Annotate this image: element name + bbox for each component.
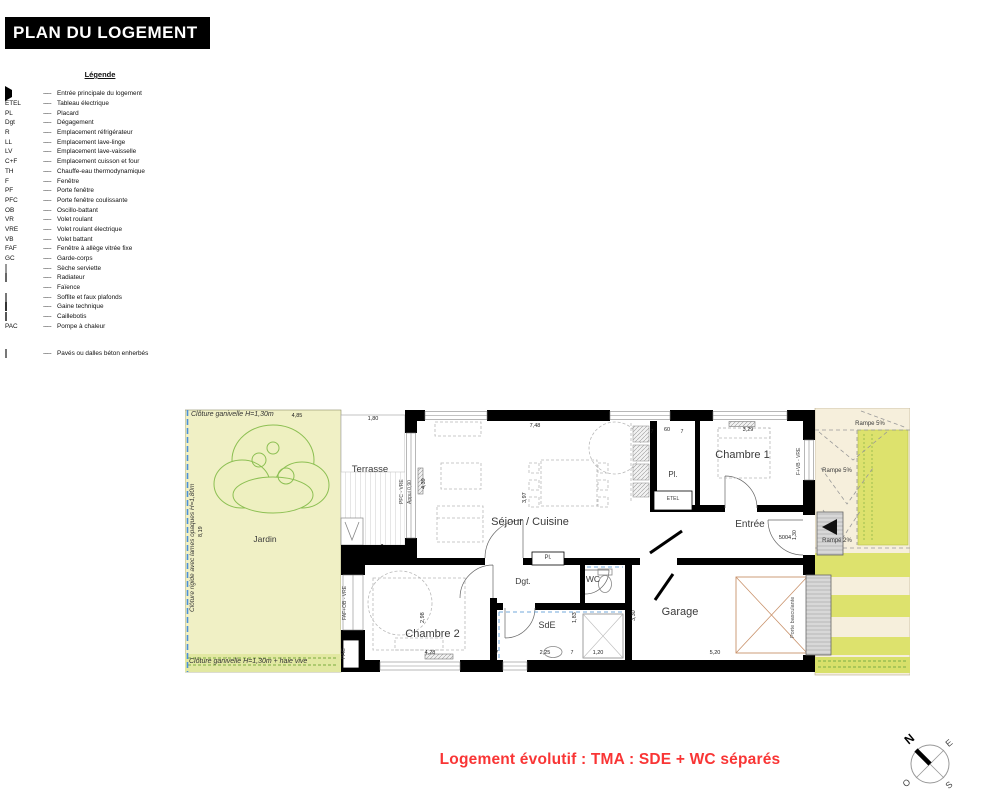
legend-item-ob: OB ----- Oscillo-battant	[5, 205, 240, 215]
seche-serviette-icon	[5, 264, 7, 273]
footer-note: Logement évolutif : TMA : SDE + WC sépar…	[420, 751, 800, 769]
legend-desc: Emplacement lave-vaisselle	[57, 148, 136, 155]
legend-dash: -----	[43, 313, 57, 320]
paves-swatch-icon	[5, 349, 7, 358]
legend-desc: Dégagement	[57, 119, 94, 126]
legend-item-pfc: PFC ----- Porte fenêtre coulissante	[5, 196, 240, 206]
legend-item-etel: ETEL ----- Tableau électrique	[5, 99, 240, 109]
legend-desc: Porte fenêtre	[57, 187, 94, 194]
legend-key: F	[5, 178, 43, 185]
legend-key: OB	[5, 207, 43, 214]
room-label-terrasse: Terrasse	[330, 465, 410, 475]
ramp-label-bottom: Rampé 2%	[807, 538, 867, 544]
legend-key: PFC	[5, 197, 43, 204]
legend-item-pl: PL ----- Placard	[5, 108, 240, 118]
legend-dash: -----	[43, 197, 57, 204]
legend-dash: -----	[43, 207, 57, 214]
legend-item-chauffe-eau: TH ----- Chauffe-eau thermodynamique	[5, 167, 240, 177]
legend-dash: -----	[43, 236, 57, 243]
legend-key: GC	[5, 255, 43, 262]
legend-key	[5, 313, 43, 320]
room-label-sde: SdE	[527, 621, 567, 630]
legend-desc: Fenêtre	[57, 178, 79, 185]
legend-dash: -----	[43, 168, 57, 175]
legend-item-seche-serviette: ----- Sèche serviette	[5, 263, 240, 273]
legend-desc: Oscillo-battant	[57, 207, 98, 214]
legend-dash: -----	[43, 284, 57, 291]
legend-item-vb: VB ----- Volet battant	[5, 234, 240, 244]
legend-key	[5, 274, 43, 281]
legend-key	[5, 303, 43, 310]
garage-door-label: Porte basculante	[791, 586, 797, 648]
legend-dash: -----	[43, 110, 57, 117]
window-label-chambre1: F+VB - VRE	[797, 440, 802, 482]
legend-dash: -----	[43, 303, 57, 310]
legend-dash: -----	[43, 129, 57, 136]
legend-header: Légende	[5, 70, 195, 79]
legend-item-fenetre: F ----- Fenêtre	[5, 176, 240, 186]
ramp-label-top: Rampe 5%	[840, 421, 900, 427]
legend-dash: -----	[43, 323, 57, 330]
dimension-label: 3,29	[730, 428, 766, 434]
legend-desc: Volet roulant électrique	[57, 226, 122, 233]
legend-dash: -----	[43, 245, 57, 252]
legend-item-vr: VR ----- Volet roulant	[5, 215, 240, 225]
window-sill-label: Appui 0,90	[408, 460, 413, 524]
dimension-label: 60	[658, 428, 676, 434]
legend-key	[5, 350, 43, 357]
dimension-label: 3,97	[523, 478, 529, 518]
legend-key: PF	[5, 187, 43, 194]
dimension-label: 7	[493, 651, 501, 656]
legend-key: R	[5, 129, 43, 136]
room-label-chambre1: Chambre 1	[685, 450, 800, 461]
caillebotis-icon	[5, 312, 7, 321]
legend-dash: -----	[43, 216, 57, 223]
dimension-label: 5,20	[695, 651, 735, 657]
legend-item-dgt: Dgt ----- Dégagement	[5, 118, 240, 128]
room-label-etel: ETEL	[654, 497, 692, 502]
legend-item-cuisson: C+F ----- Emplacement cuisson et four	[5, 157, 240, 167]
legend-item-pac: PAC ----- Pompe à chaleur	[5, 322, 240, 332]
legend-desc: Entrée principale du logement	[57, 90, 142, 97]
floor-plan: Terrasse Jardin Séjour / Cuisine Chambre…	[185, 408, 910, 676]
legend-key: ETEL	[5, 100, 43, 107]
dimension-label: 7	[648, 430, 656, 435]
legend-desc: Fenêtre à allège vitrée fixe	[57, 245, 132, 252]
legend-item-radiateur: ----- Radiateur	[5, 273, 240, 283]
dimension-label: 8,19	[199, 516, 205, 548]
legend-desc: Emplacement lave-linge	[57, 139, 125, 146]
legend-desc: Radiateur	[57, 274, 85, 281]
legend-desc: Faïence	[57, 284, 80, 291]
legend-item-lave-linge: LL ----- Emplacement lave-linge	[5, 137, 240, 147]
legend-key: C+F	[5, 158, 43, 165]
room-label-placard1: Pl.	[658, 471, 688, 479]
legend-item-caillebotis: ----- Caillebotis	[5, 312, 240, 322]
legend-desc: Chauffe-eau thermodynamique	[57, 168, 145, 175]
legend-key: VR	[5, 216, 43, 223]
dimension-label: 4,85	[280, 414, 314, 420]
legend-key: VRE	[5, 226, 43, 233]
legend-item-porte-fenetre: PF ----- Porte fenêtre	[5, 186, 240, 196]
dimension-label: 7	[568, 651, 576, 656]
room-label-dgt: Dgt.	[503, 577, 543, 586]
legend-item-gaine: ----- Gaine technique	[5, 302, 240, 312]
legend-item-entree-principale: ----- Entrée principale du logement	[5, 89, 240, 99]
dimension-label: 3,30	[632, 601, 638, 631]
legend-key: LL	[5, 139, 43, 146]
dimension-label: 7,48	[515, 424, 555, 430]
legend-desc: Placard	[57, 110, 79, 117]
legend-desc: Volet roulant	[57, 216, 93, 223]
legend-dash: -----	[43, 187, 57, 194]
fence-label-left: Clôture rigide avec lames opaques H=1,80…	[190, 448, 197, 648]
legend-desc: Caillebotis	[57, 313, 86, 320]
fence-label-top: Clôture ganivelle H=1,30m	[191, 411, 341, 418]
dimension-label: 7	[678, 430, 686, 435]
legend-desc: Pompe à chaleur	[57, 323, 105, 330]
legend-dash: -----	[43, 274, 57, 281]
legend-key: PL	[5, 110, 43, 117]
legend-desc: Tableau électrique	[57, 100, 109, 107]
legend-item-faf: FAF ----- Fenêtre à allège vitrée fixe	[5, 244, 240, 254]
legend-dash: -----	[43, 350, 57, 357]
room-label-placard2: Pl.	[534, 555, 562, 561]
room-label-sejour-cuisine: Séjour / Cuisine	[435, 517, 625, 528]
legend-desc: Gaine technique	[57, 303, 104, 310]
legend-dash: -----	[43, 90, 57, 97]
room-label-wc: WC	[575, 575, 611, 584]
dimension-label: 1,80	[355, 417, 391, 423]
legend-dash: -----	[43, 294, 57, 301]
legend-desc: Soffite et faux plafonds	[57, 294, 122, 301]
dimension-label: 1,83	[573, 603, 579, 633]
window-label-chambre2: FAF+OB - VRE	[343, 576, 348, 630]
legend-dash: -----	[43, 139, 57, 146]
legend-key: TH	[5, 168, 43, 175]
legend-item-faience: ----- Faïence	[5, 283, 240, 293]
gaine-technique-icon	[5, 302, 7, 311]
legend-item-refrigerateur: R ----- Emplacement réfrigérateur	[5, 128, 240, 138]
room-label-entree: Entrée	[705, 520, 795, 530]
legend-desc: Garde-corps	[57, 255, 93, 262]
legend: Légende ----- Entrée principale du logem…	[5, 70, 240, 366]
legend-dash: -----	[43, 148, 57, 155]
legend-item-gc: GC ----- Garde-corps	[5, 254, 240, 264]
room-label-jardin: Jardin	[225, 535, 305, 544]
dimension-label: 1,30	[793, 520, 798, 550]
dimension-label: 2,25	[527, 651, 563, 657]
legend-key	[5, 90, 43, 97]
legend-dash: -----	[43, 119, 57, 126]
legend-key: LV	[5, 148, 43, 155]
legend-item-paves: ----- Pavés ou dalles béton enherbés	[5, 340, 240, 366]
legend-desc: Sèche serviette	[57, 265, 101, 272]
soffite-icon	[5, 293, 7, 302]
legend-dash: -----	[43, 255, 57, 262]
radiateur-icon	[5, 273, 7, 282]
legend-desc: Emplacement réfrigérateur	[57, 129, 133, 136]
dimension-label: 4,39	[422, 466, 428, 502]
legend-key: Dgt	[5, 119, 43, 126]
legend-desc: Porte fenêtre coulissante	[57, 197, 128, 204]
ramp-label-mid: Rampe 5%	[807, 468, 867, 474]
entry-door-box	[817, 512, 843, 555]
legend-dash: -----	[43, 158, 57, 165]
legend-item-vre: VRE ----- Volet roulant électrique	[5, 225, 240, 235]
dimension-label: 4,28	[410, 651, 450, 657]
legend-key: VB	[5, 236, 43, 243]
compass-rose: N E O S	[900, 730, 962, 794]
legend-item-soffite: ----- Soffite et faux plafonds	[5, 292, 240, 302]
legend-desc: Volet battant	[57, 236, 93, 243]
dimension-label: 1,20	[583, 651, 613, 657]
legend-dash: -----	[43, 178, 57, 185]
room-label-garage: Garage	[635, 607, 725, 618]
fence-label-bottom: Clôture ganivelle H=1,30m + haie vive	[189, 658, 349, 665]
room-label-chambre2: Chambre 2	[375, 629, 490, 640]
terrasse-area	[341, 415, 405, 545]
legend-item-lave-vaisselle: LV ----- Emplacement lave-vaisselle	[5, 147, 240, 157]
legend-key	[5, 265, 43, 272]
window-label-sejour: PFC - VRE	[400, 460, 405, 524]
dimension-label: 2,98	[421, 603, 427, 633]
legend-dash: -----	[43, 100, 57, 107]
legend-dash: -----	[43, 265, 57, 272]
legend-dash: -----	[43, 226, 57, 233]
legend-key	[5, 294, 43, 301]
legend-desc: Emplacement cuisson et four	[57, 158, 139, 165]
page-title: PLAN DU LOGEMENT	[5, 17, 210, 49]
legend-desc: Pavés ou dalles béton enherbés	[57, 350, 148, 357]
legend-key: FAF	[5, 245, 43, 252]
legend-key: PAC	[5, 323, 43, 330]
